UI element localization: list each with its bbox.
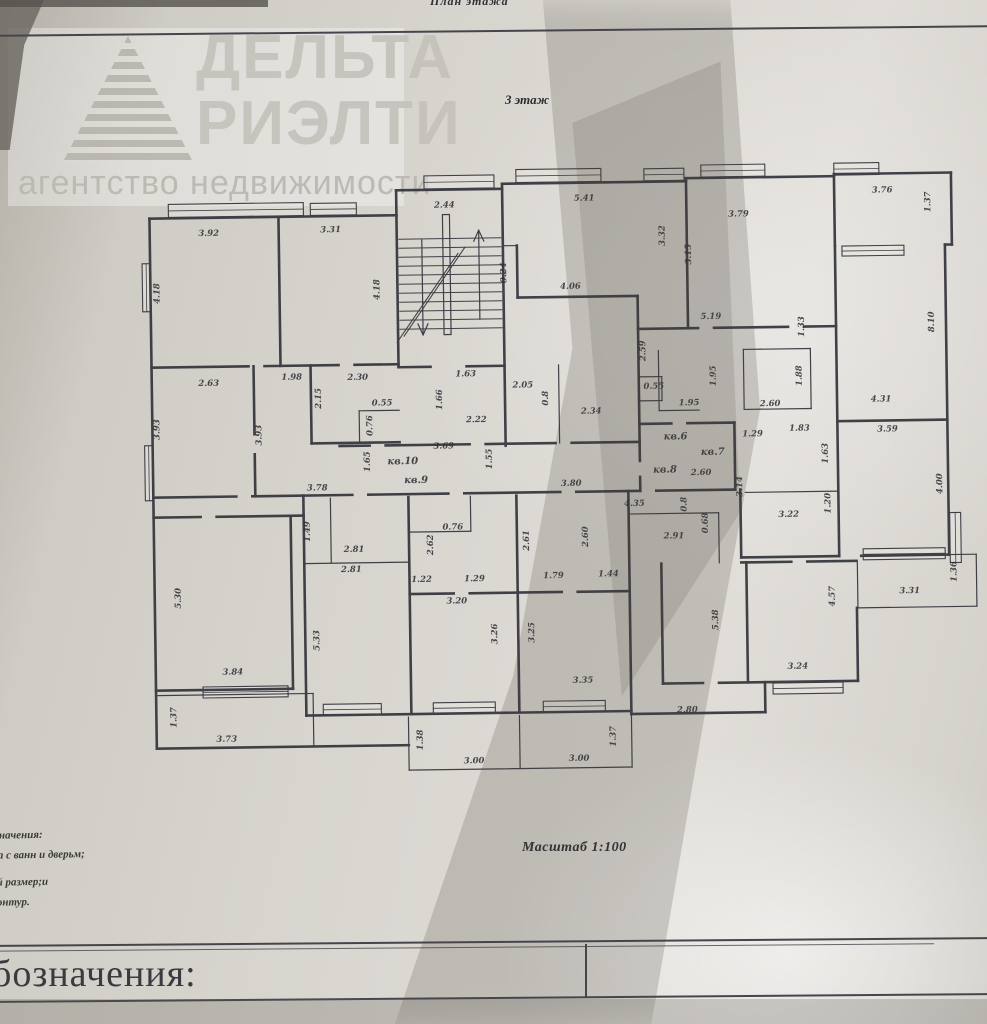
wall bbox=[834, 173, 951, 175]
wall bbox=[408, 497, 411, 714]
wall bbox=[837, 421, 839, 556]
apartment-label: кв.10 bbox=[387, 456, 418, 467]
wall bbox=[837, 420, 947, 422]
dimension-label: 3.93 bbox=[152, 419, 162, 440]
wall bbox=[330, 498, 331, 563]
wall bbox=[807, 561, 856, 562]
dimension-label: 1.65 bbox=[363, 451, 373, 472]
wall bbox=[291, 516, 293, 689]
dimension-label: 3.24 bbox=[787, 662, 808, 672]
dimension-label: 2.63 bbox=[197, 379, 219, 389]
dimension-label: 5.33 bbox=[312, 630, 322, 651]
dimension-label: 1.20 bbox=[823, 493, 833, 514]
wall bbox=[858, 606, 977, 608]
wall bbox=[470, 593, 518, 594]
wall bbox=[396, 189, 502, 190]
dimension-label: 1.37 bbox=[169, 707, 179, 728]
wall bbox=[312, 442, 400, 443]
dimension-label: 1.29 bbox=[464, 574, 485, 584]
wall bbox=[810, 348, 811, 408]
dimension-label: 3.59 bbox=[877, 424, 898, 434]
dimension-label: 4.18 bbox=[372, 279, 382, 300]
dimension-label: 1.83 bbox=[789, 424, 810, 434]
wall bbox=[464, 492, 560, 493]
wall bbox=[502, 184, 506, 446]
dimension-label: 2.15 bbox=[314, 388, 324, 410]
dimension-label: 2.62 bbox=[426, 534, 436, 556]
dimension-label: 3.78 bbox=[307, 483, 328, 493]
wall bbox=[861, 555, 949, 556]
dimension-label: 2.44 bbox=[433, 200, 455, 210]
wall bbox=[857, 561, 858, 608]
dimension-label: 2.61 bbox=[522, 530, 532, 552]
wall bbox=[857, 608, 858, 681]
dimension-label: 3.69 bbox=[433, 441, 454, 451]
legend-block: бозначения: тка с ванн и дверьм; вый раз… bbox=[0, 830, 85, 917]
dimension-label: 4.00 bbox=[935, 473, 945, 494]
dimension-label: 1.37 bbox=[923, 191, 933, 212]
wall bbox=[741, 562, 791, 563]
wall bbox=[359, 410, 399, 411]
dimension-label: 1.66 bbox=[435, 389, 445, 410]
dimension-label: 0.55 bbox=[372, 398, 393, 408]
dimension-label: 4.31 bbox=[871, 394, 892, 404]
dimension-label: 1.88 bbox=[795, 365, 805, 386]
wall bbox=[311, 365, 312, 443]
dimension-label: 1.98 bbox=[281, 373, 302, 383]
dimension-label: 2.60 bbox=[759, 399, 781, 409]
wall bbox=[278, 217, 280, 366]
wall bbox=[835, 246, 837, 421]
dimension-label: 0.76 bbox=[365, 415, 375, 436]
wall bbox=[368, 494, 448, 495]
wall bbox=[517, 246, 518, 298]
dimension-label: 1.55 bbox=[485, 448, 495, 469]
dimension-label: 2.05 bbox=[511, 380, 533, 390]
dimension-label: 1.63 bbox=[821, 443, 831, 464]
dimension-label: 2.81 bbox=[343, 545, 365, 555]
wall bbox=[157, 745, 409, 749]
wall bbox=[304, 562, 409, 563]
dimension-label: 3.76 bbox=[872, 185, 893, 195]
dimension-label: 0.24 bbox=[499, 262, 509, 283]
wall bbox=[254, 366, 255, 434]
dimension-label: 2.30 bbox=[346, 373, 368, 383]
wall bbox=[255, 454, 256, 496]
dimension-label: 8.10 bbox=[927, 311, 937, 332]
dimension-label: 4.18 bbox=[152, 283, 162, 304]
wall bbox=[467, 366, 505, 367]
legend-line: бозначения: bbox=[0, 829, 85, 842]
dimension-label: 1.36 bbox=[949, 561, 959, 582]
legend-section-title: бозначения: bbox=[0, 952, 197, 996]
dimension-label: 3.00 bbox=[464, 756, 485, 766]
wall bbox=[486, 443, 556, 444]
dimension-label: 4.57 bbox=[828, 586, 838, 607]
dimension-label: 1.49 bbox=[303, 521, 313, 542]
dimension-label: 3.31 bbox=[320, 225, 341, 235]
dimension-label: 2.81 bbox=[340, 565, 362, 575]
wall bbox=[313, 693, 314, 746]
legend-line: у контур. bbox=[0, 896, 85, 909]
photo-of-floor-plan-page: ДЕЛЬТА РИЭЛТИ агентство недвижимости Пла… bbox=[0, 0, 987, 1024]
table-column-divider bbox=[585, 944, 587, 998]
wall bbox=[745, 491, 838, 492]
wall bbox=[152, 366, 249, 367]
dimension-label: 2.22 bbox=[465, 415, 487, 425]
dimension-label: 3.26 bbox=[490, 623, 500, 644]
stair-direction-arrow bbox=[479, 231, 480, 319]
dimension-label: 0.76 bbox=[442, 522, 463, 532]
dimension-label: 3.92 bbox=[198, 229, 219, 239]
dimension-label: 1.22 bbox=[411, 575, 432, 585]
wall bbox=[265, 365, 339, 366]
dimension-label: 1.63 bbox=[455, 369, 476, 379]
apartment-label: кв.9 bbox=[404, 475, 428, 486]
wall bbox=[355, 364, 399, 365]
wall bbox=[945, 245, 949, 555]
wall bbox=[408, 717, 409, 770]
dimension-label: 3.84 bbox=[222, 667, 243, 677]
stair-arrow-head bbox=[474, 230, 479, 241]
dimension-label: 3.20 bbox=[446, 596, 467, 606]
page-bottom-shade bbox=[0, 999, 987, 1024]
legend-line: тка с ванн и дверьм; bbox=[0, 849, 85, 862]
dimension-label: 3.31 bbox=[899, 586, 920, 596]
dimension-label: 0.8 bbox=[541, 391, 551, 406]
wall bbox=[951, 173, 952, 245]
legend-line: вый размер;и bbox=[0, 876, 85, 889]
wall bbox=[410, 593, 454, 594]
wall bbox=[746, 562, 748, 682]
dimension-label: 3.93 bbox=[254, 425, 264, 446]
wall bbox=[976, 554, 977, 606]
page-top-edge bbox=[0, 0, 268, 7]
dimension-label: 3.22 bbox=[778, 510, 799, 520]
wall bbox=[153, 497, 236, 498]
wall bbox=[154, 517, 201, 518]
dimension-label: 3.73 bbox=[216, 735, 237, 745]
stair-arrow-head bbox=[479, 230, 484, 241]
dimension-label: 1.38 bbox=[416, 729, 426, 750]
stair-break-line bbox=[403, 247, 466, 336]
wall bbox=[741, 556, 839, 557]
wall bbox=[834, 174, 835, 246]
dimension-label: 5.30 bbox=[174, 588, 184, 609]
wall bbox=[386, 444, 470, 445]
dimension-label: 1.33 bbox=[797, 316, 807, 337]
